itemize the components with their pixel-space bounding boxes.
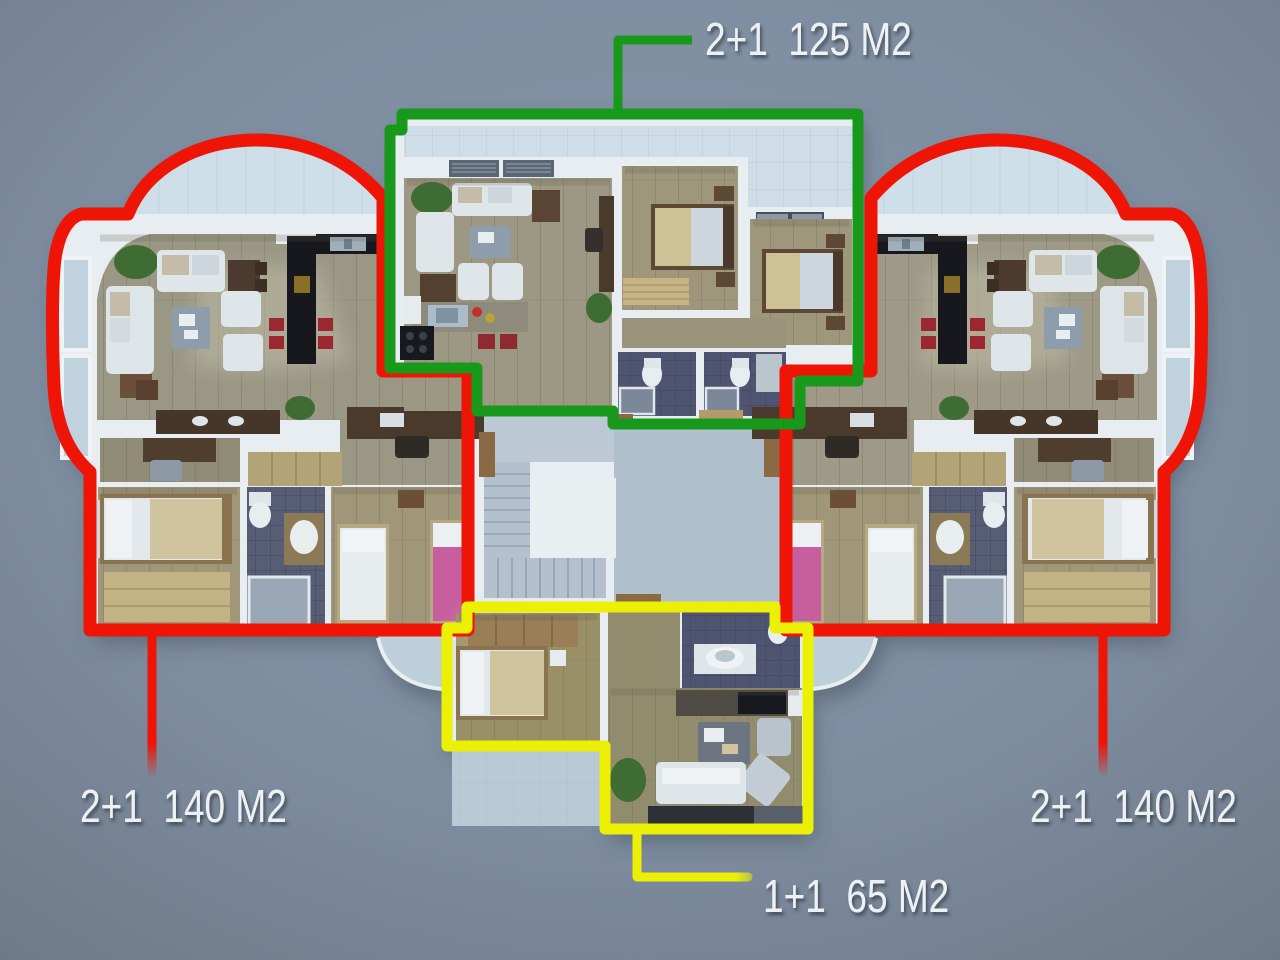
svg-text:2+1 125 M2: 2+1 125 M2 [705,13,912,65]
svg-text:1+1 65 M2: 1+1 65 M2 [763,870,949,922]
svg-text:2+1 140 M2: 2+1 140 M2 [80,780,287,832]
svg-text:2+1 140 M2: 2+1 140 M2 [1030,780,1237,832]
